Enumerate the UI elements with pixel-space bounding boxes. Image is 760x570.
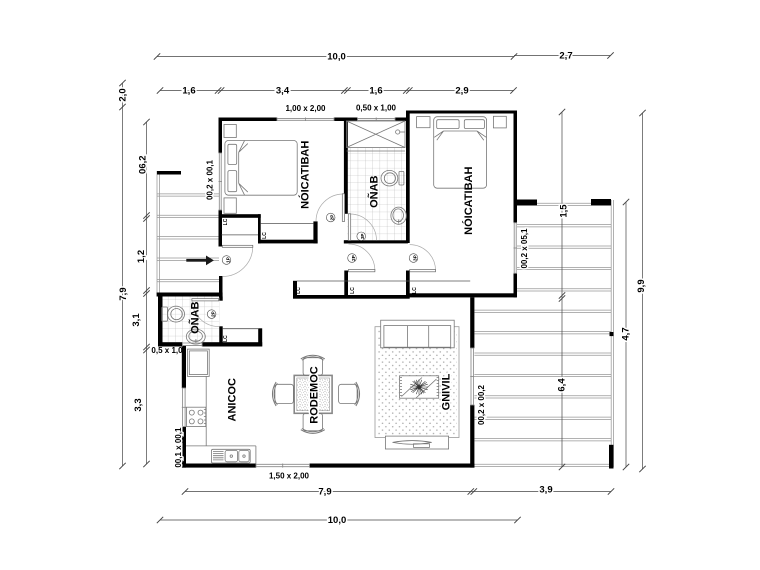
- svg-text:7,9: 7,9: [318, 487, 331, 498]
- svg-text:1P: 1P: [225, 257, 230, 263]
- svg-text:OÑAB: OÑAB: [188, 301, 201, 333]
- svg-text:NÓICATIBAH: NÓICATIBAH: [462, 167, 475, 235]
- svg-text:0,5 x 1,0: 0,5 x 1,0: [151, 346, 183, 355]
- svg-text:1,6: 1,6: [182, 86, 195, 97]
- svg-text:3,3: 3,3: [133, 398, 144, 411]
- svg-text:OÑAB: OÑAB: [368, 175, 381, 207]
- svg-text:7,9: 7,9: [118, 287, 129, 300]
- svg-text:NÓICATIBAH: NÓICATIBAH: [299, 141, 312, 209]
- svg-text:1,2: 1,2: [136, 250, 147, 263]
- svg-text:3,9: 3,9: [539, 485, 552, 496]
- svg-text:2P: 2P: [211, 311, 216, 317]
- svg-text:RODEMOC: RODEMOC: [309, 366, 321, 424]
- svg-text:3,4: 3,4: [276, 86, 290, 97]
- svg-text:2,9: 2,9: [455, 86, 468, 97]
- svg-text:2,7: 2,7: [559, 51, 572, 62]
- svg-text:6,4: 6,4: [557, 378, 568, 392]
- svg-text:1,5: 1,5: [558, 204, 569, 218]
- svg-text:00,2 x 05,1: 00,2 x 05,1: [520, 228, 529, 269]
- svg-text:10,0: 10,0: [328, 515, 347, 526]
- svg-text:10,0: 10,0: [327, 52, 346, 63]
- svg-text:2,0: 2,0: [118, 88, 129, 101]
- svg-text:2P: 2P: [351, 255, 356, 261]
- svg-text:LC: LC: [262, 232, 268, 239]
- svg-text:00,1 x 00,1: 00,1 x 00,1: [174, 427, 183, 468]
- svg-text:0,50 x 1,00: 0,50 x 1,00: [356, 104, 397, 113]
- svg-text:LC: LC: [350, 287, 356, 294]
- svg-text:3,1: 3,1: [131, 313, 142, 327]
- svg-text:LC: LC: [412, 287, 418, 294]
- svg-text:1,50 x 2,00: 1,50 x 2,00: [269, 472, 310, 481]
- svg-text:LC: LC: [223, 218, 229, 225]
- svg-text:GNIVIL: GNIVIL: [441, 373, 453, 410]
- svg-text:1,00 x 2,00: 1,00 x 2,00: [285, 104, 326, 113]
- svg-text:4,7: 4,7: [621, 327, 632, 340]
- svg-text:ANICOC: ANICOC: [226, 378, 238, 421]
- svg-text:06,2: 06,2: [138, 155, 149, 174]
- svg-text:3P: 3P: [360, 233, 365, 239]
- svg-text:00,2 x 00,1: 00,2 x 00,1: [205, 159, 214, 200]
- svg-text:3P: 3P: [413, 255, 418, 261]
- svg-text:1,6: 1,6: [369, 86, 382, 97]
- svg-text:2P: 2P: [330, 215, 335, 221]
- svg-text:00,2 x 00,2: 00,2 x 00,2: [477, 384, 486, 425]
- svg-text:LC: LC: [296, 287, 302, 294]
- svg-text:LC: LC: [223, 335, 229, 342]
- svg-text:9,9: 9,9: [636, 279, 647, 292]
